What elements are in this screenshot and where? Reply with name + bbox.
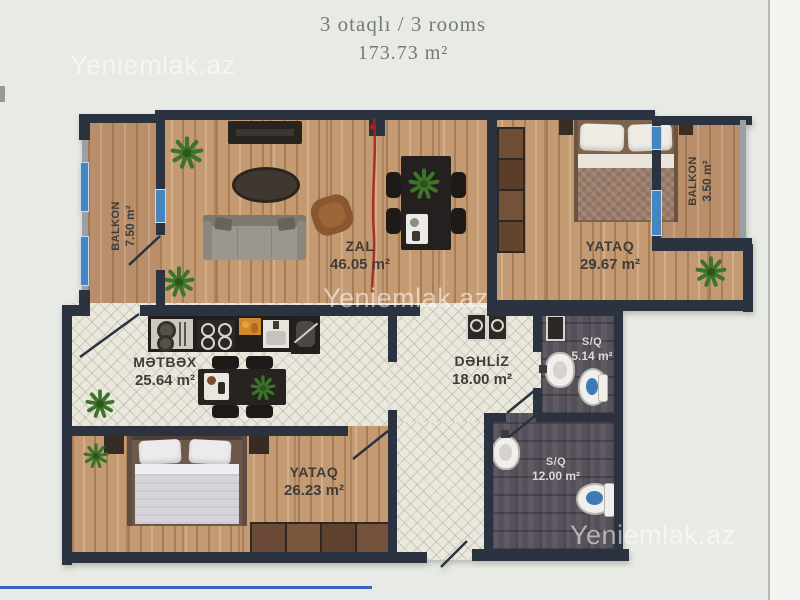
counter-prep-panel [151,319,193,349]
room-label-bathroom-large: S/Q 12.00 m² [532,455,580,485]
kitchen-table-group [198,356,286,418]
washer-door-icon [470,319,483,332]
plant-icon [250,375,276,401]
wall-post [79,290,90,316]
room-label-living: ZAL 46.05 m² [330,237,390,275]
plant-icon [170,136,204,170]
sofa-pillow [214,217,233,231]
wall-segment [156,119,165,189]
armchair-seat [316,200,348,231]
wall-post [79,114,90,140]
window [80,236,89,286]
room-area: 46.05 m² [330,255,390,275]
room-name: YATAQ [580,237,640,255]
room-name: BALKON [686,156,700,205]
wall-segment [82,114,162,123]
utensil [179,322,181,346]
window [651,126,662,150]
room-label-balcony-left: BALKON 7.50 m² [109,201,139,250]
room-area: 26.23 m² [284,481,344,501]
toilet-bowl-water [586,491,603,505]
faucet [501,430,509,438]
room-label-bedroom-bottom: YATAQ 26.23 m² [284,463,344,501]
window [651,190,662,236]
room-area: 12.00 m² [532,469,580,485]
sofa-armrest [297,221,306,260]
room-name: YATAQ [284,463,344,481]
plant-icon [163,266,195,298]
wall-segment [497,300,753,311]
pan [157,335,174,352]
dish [410,218,419,227]
room-area: 7.50 m² [123,201,139,250]
room-name: BALKON [109,201,123,250]
sink-basin [266,331,286,345]
plant-icon [83,443,109,469]
wall-segment [652,238,752,251]
stove [197,320,235,349]
kitchen-chair [212,356,239,369]
bed-rail [127,430,132,526]
room-name: S/Q [571,335,612,349]
page-fold-edge [768,0,800,600]
washing-machine [487,313,508,341]
tv-stand [228,121,302,144]
pillow [188,439,231,465]
duvet [135,474,239,524]
faucet [539,365,547,373]
window [155,189,166,223]
kitchen-chair [246,356,273,369]
floor-hallway-lower [390,422,484,560]
toilet-tank [598,374,608,402]
burner [201,336,215,350]
kitchen-sink [263,320,289,348]
burner [218,323,232,337]
room-name: MƏTBƏX [133,353,197,371]
wall-segment [484,413,506,422]
room-area: 5.14 m² [571,349,612,365]
pillow [138,439,181,465]
wall-segment [155,110,655,120]
sofa-armrest [203,221,212,260]
wall-segment [653,116,752,125]
pen-line [0,586,372,589]
wall-segment [487,110,497,306]
wardrobe-section [499,129,523,158]
room-label-bedroom-top: YATAQ 29.67 m² [580,237,640,275]
coffee-table [232,167,300,203]
dining-chair [451,208,466,234]
dining-chair [451,172,466,198]
sofa-cushion-divider [237,228,238,258]
plant-icon [695,256,727,288]
wall-segment [156,223,165,235]
balcony-railing [740,120,746,240]
corner-cabinet [291,314,320,354]
bottle [218,382,225,394]
bed-top-bedroom [574,118,678,222]
toilet-icon [578,368,608,406]
dish [207,376,216,385]
room-label-balcony-right: BALKON 3.50 m² [686,156,716,205]
room-area: 25.64 m² [133,371,197,391]
cutting-board [239,318,261,335]
wall-segment [614,305,623,552]
serving-tray [406,214,428,244]
sofa-seat [203,226,306,260]
room-area: 18.00 m² [452,370,512,390]
plant-icon [408,168,440,200]
room-area: 3.50 m² [700,156,716,205]
page-edge-mark [0,86,5,102]
bed-bottom-bedroom [127,430,247,526]
room-area: 29.67 m² [580,255,640,275]
room-label-kitchen: MƏTBƏX 25.64 m² [133,353,197,391]
pillow [580,123,625,152]
washing-machine [466,313,487,341]
watermark-center: Yeniemlak.az [323,283,489,314]
wall-segment [62,552,427,563]
wall-segment [484,422,493,552]
watermark-bottom: Yeniemlak.az [570,520,736,551]
kitchen-chair [246,405,273,418]
bed-rail [242,430,247,526]
food-item [242,321,249,328]
room-label-bathroom-small: S/Q 5.14 m² [571,335,612,365]
burner [218,336,232,350]
nightstand [559,119,573,135]
room-name: S/Q [532,455,580,469]
plant-icon [85,389,115,419]
burner [201,323,215,337]
toilet-icon [576,483,614,515]
kitchen-chair [212,405,239,418]
sink-basin [499,444,512,461]
wardrobe-section [499,191,523,220]
window [80,162,89,212]
food-item [251,323,258,333]
utensil [184,322,186,346]
kitchen-counter [148,314,320,354]
room-name: ZAL [330,237,390,255]
wall-segment [388,312,397,362]
nightstand [249,434,269,454]
bed-rail [674,118,678,222]
dining-chair [386,208,401,234]
dining-table-group [386,156,466,250]
wall-segment [533,312,542,352]
wardrobe-top-bedroom [497,127,525,253]
dining-chair [386,172,401,198]
room-label-hallway: DƏHLİZ 18.00 m² [452,352,512,390]
faucet [273,321,279,329]
tv [236,129,294,136]
pillow [628,123,673,152]
bottle [412,231,420,241]
sofa-cushion-divider [271,228,272,258]
wardrobe-section [499,160,523,189]
wardrobe-section [499,222,523,251]
wall-stub [369,120,385,136]
room-name: DƏHLİZ [452,352,512,370]
washer-door-icon [491,319,504,332]
wall-segment [62,426,348,436]
wall-segment [536,413,615,422]
bathroom-sink [492,436,520,470]
sofa [203,215,306,260]
toilet-bowl-water [586,378,598,395]
serving-tray [204,373,229,400]
scanned-floor-plan-page: 3 otaqlı / 3 rooms 173.73 m² Yeniemlak.a… [0,0,800,600]
sink-basin [553,361,567,379]
wall-segment [388,410,397,556]
sofa-pillow [277,217,296,231]
watermark-top: Yeniemlak.az [70,50,236,81]
boiler-unit [546,315,565,341]
